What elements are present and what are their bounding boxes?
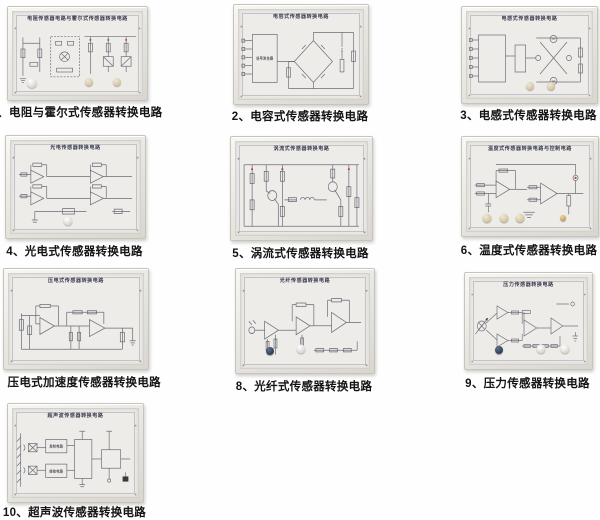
panel-board-optical-fiber: 光纤传感器转换电路: [235, 268, 375, 374]
knob-gold: [560, 215, 566, 221]
panel-face: 温度式传感器转换电路与控制电路: [466, 141, 594, 232]
panel-title: 电容式传感器转换电路: [239, 10, 363, 24]
panel-caption: 7、压电式加速度传感器转换电路: [3, 374, 147, 390]
knob-beige: [483, 213, 492, 222]
panel-face: 超声波传感器转换电路 发射电路 接收电路: [12, 408, 139, 498]
panel-title: 电感式传感器转换电路: [467, 12, 592, 26]
panel-face: 光电传感器转换电路: [10, 140, 141, 234]
panel-caption: 2、电容式传感器转换电路: [233, 108, 367, 124]
panel-board-inductive: 电感式传感器转换电路: [461, 6, 598, 104]
schematic-pressure: [470, 292, 587, 364]
panel-face: 电容式传感器转换电路 信号发生器: [238, 9, 364, 100]
knob-beige: [547, 82, 555, 90]
schematic-optical-fiber: [241, 288, 369, 368]
knob-beige: [113, 78, 121, 86]
knob-dark: [495, 346, 503, 354]
panel-title: 光电传感器转换电路: [11, 141, 140, 155]
panel-caption: 8、光纤式传感器转换电路: [235, 378, 373, 394]
panel-board-capacitive: 电容式传感器转换电路 信号发生器: [233, 4, 369, 105]
panel-board-resistance-hall: 电阻传感器电路与霍尔式传感器转换电路: [7, 6, 148, 101]
block-label-transmit: 发射电路: [48, 444, 63, 449]
panel-title: 光纤传感器转换电路: [241, 274, 369, 288]
panel-board-eddy-current: 涡流式传感器转换电路: [230, 136, 373, 241]
panel-title: 压力传感器转换电路: [470, 278, 587, 292]
panel-board-pressure: 压力传感器转换电路: [464, 272, 593, 370]
knob-white: [537, 345, 546, 354]
knob-beige: [499, 213, 508, 222]
panel-caption: 10、超声波传感器转换电路: [7, 504, 142, 520]
panel-title: 涡流式传感器转换电路: [236, 142, 367, 156]
knob-white: [297, 345, 306, 354]
panel-face: 压电式传感器转换电路: [8, 273, 144, 365]
knob-white: [63, 217, 72, 226]
schematic-ultrasonic: 发射电路 接收电路: [13, 423, 138, 497]
schematic-capacitive: 信号发生器: [239, 24, 363, 99]
panel-face: 压力传感器转换电路: [469, 277, 588, 365]
schematic-photoelectric: [11, 155, 140, 233]
knob-beige: [515, 213, 524, 222]
schematic-eddy-current: [236, 156, 367, 235]
panel-caption: 3、电感式传感器转换电路: [461, 107, 596, 123]
panel-caption: 1、电阻与霍尔式传感器转换电路: [7, 104, 146, 120]
panel-face: 电阻传感器电路与霍尔式传感器转换电路: [12, 11, 143, 96]
knob-white: [27, 78, 37, 88]
panel-board-ultrasonic: 超声波传感器转换电路 发射电路 接收电路: [7, 403, 144, 503]
panel-title: 超声波传感器转换电路: [13, 409, 138, 423]
panel-face: 电感式传感器转换电路: [466, 11, 593, 99]
knob-beige: [85, 78, 93, 86]
panel-caption: 6、温度式传感器转换电路: [461, 242, 597, 258]
panel-title: 压电式传感器转换电路: [9, 274, 143, 288]
panel-caption: 5、涡流式传感器转换电路: [230, 245, 371, 261]
panel-caption: 9、压力传感器转换电路: [464, 375, 591, 391]
panel-face: 涡流式传感器转换电路: [235, 141, 368, 236]
panel-caption: 4、光电式传感器转换电路: [5, 243, 144, 259]
knob-white: [560, 345, 569, 354]
block-label: 信号发生器: [256, 55, 273, 60]
panel-board-photoelectric: 光电传感器转换电路: [5, 135, 146, 239]
knob-dark: [266, 347, 274, 355]
catalog-grid: 电阻传感器电路与霍尔式传感器转换电路: [0, 0, 600, 516]
panel-title: 电阻传感器电路与霍尔式传感器转换电路: [13, 12, 142, 26]
panel-board-piezoelectric: 压电式传感器转换电路: [3, 268, 149, 370]
schematic-piezoelectric: [9, 288, 143, 364]
panel-face: 光纤传感器转换电路: [240, 273, 370, 369]
block-label-receive: 接收电路: [49, 468, 63, 473]
panel-title: 温度式传感器转换电路与控制电路: [467, 142, 593, 156]
panel-board-temperature: 温度式传感器转换电路与控制电路: [461, 136, 599, 237]
knob-beige: [526, 82, 534, 90]
